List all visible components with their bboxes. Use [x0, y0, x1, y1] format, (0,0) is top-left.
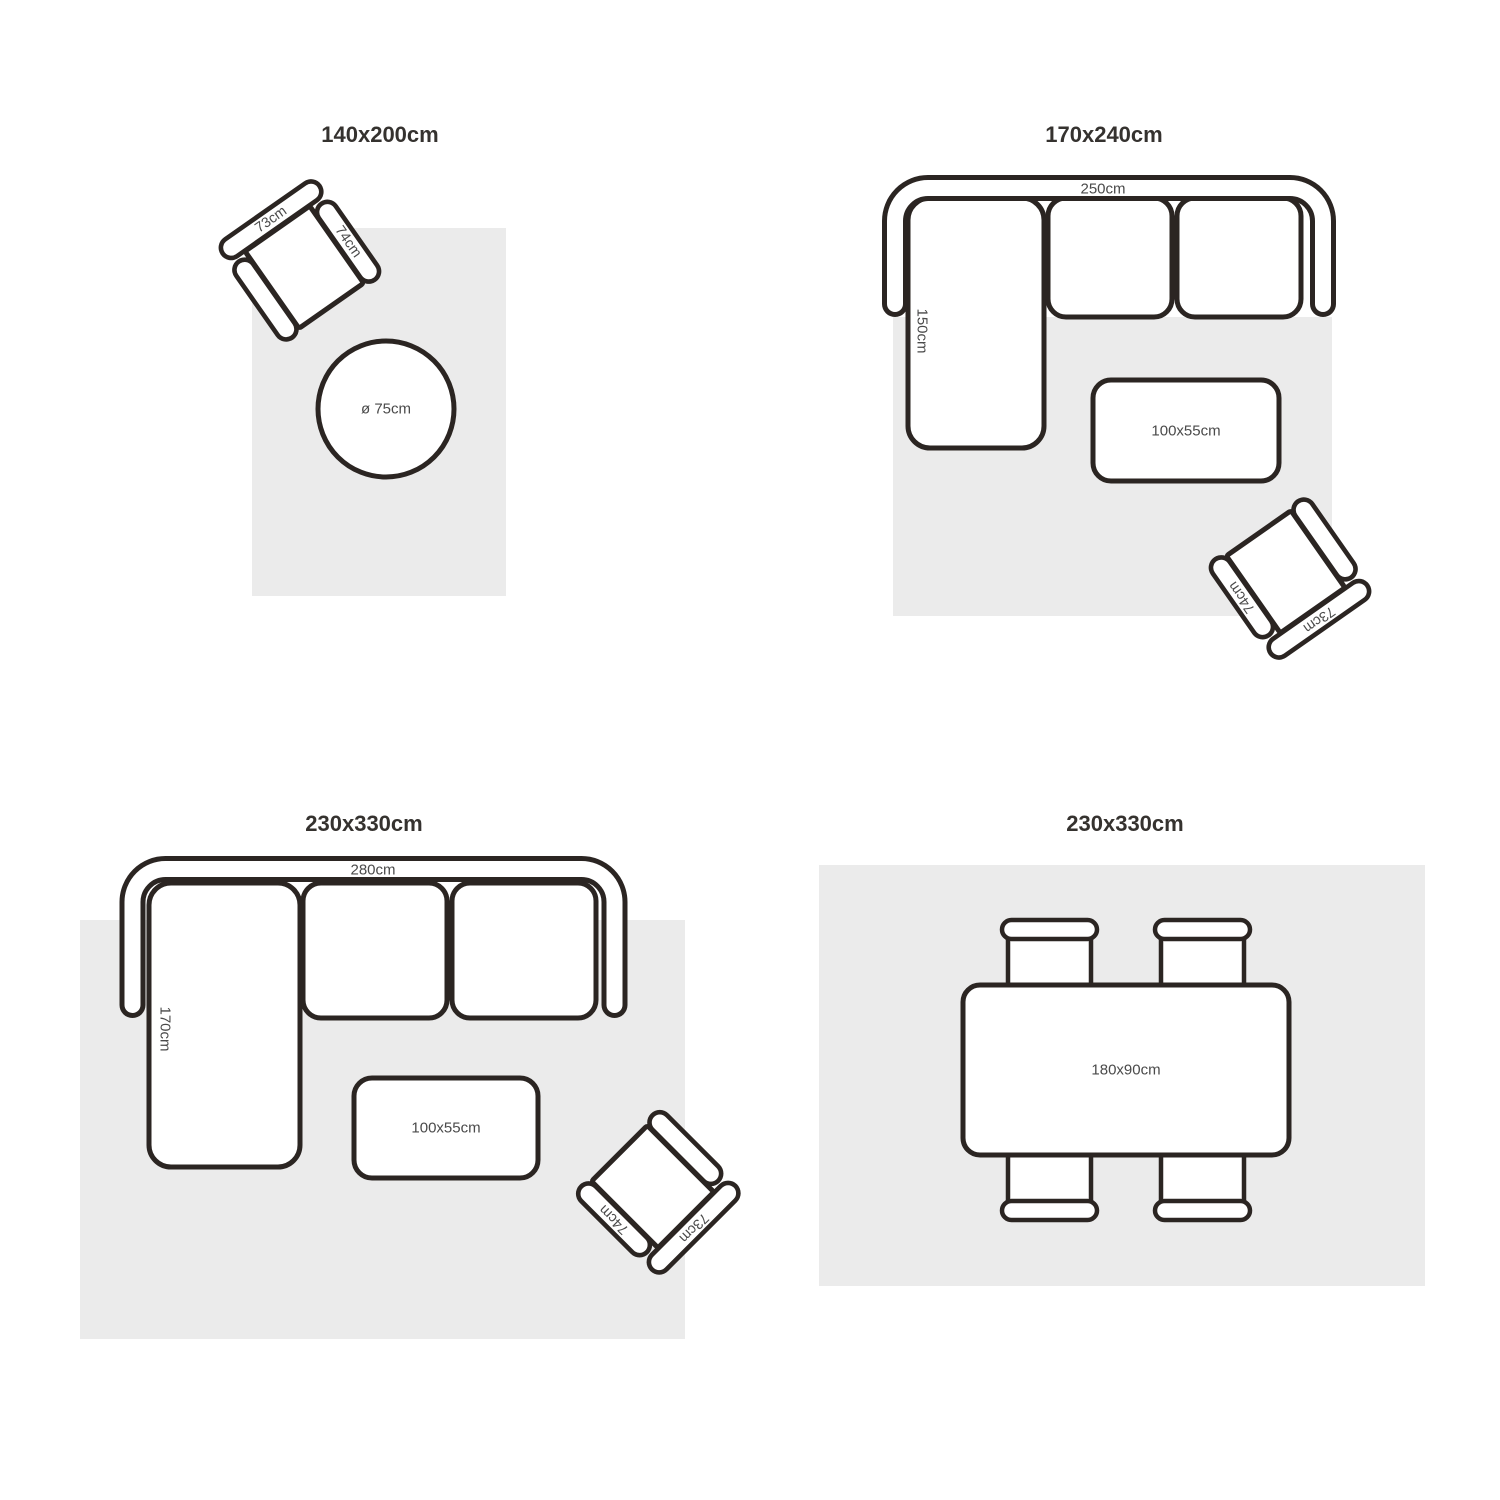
sofa-depth-dimension: 150cm [914, 308, 931, 353]
dining-chair-backrest [1002, 920, 1097, 939]
sofa-width-dimension: 280cm [350, 862, 395, 879]
sofa-cushion [1048, 198, 1172, 317]
panel-title: 170x240cm [1045, 122, 1162, 147]
sofa-depth-dimension: 170cm [157, 1006, 174, 1051]
dining-chair-seat [1008, 938, 1091, 986]
panel-140x200: 140x200cm 73cm 74cm ø 75cm [225, 122, 506, 596]
dining-chair-backrest [1002, 1201, 1097, 1220]
panel-title: 230x330cm [1066, 811, 1183, 836]
dining-chair [1155, 920, 1250, 986]
dining-chair-seat [1161, 1154, 1244, 1202]
dining-chair-seat [1008, 1154, 1091, 1202]
sofa-cushion [303, 883, 447, 1018]
dining-chair-seat [1161, 938, 1244, 986]
dining-chair [1002, 1154, 1097, 1220]
panel-230x330-dining: 230x330cm 180x90cm [819, 811, 1425, 1286]
dining-chair [1002, 920, 1097, 986]
panel-230x330-living: 230x330cm 280cm 170cm 100x55cm 73cm [80, 811, 735, 1339]
sofa-width-dimension: 250cm [1080, 181, 1125, 198]
panel-title: 230x330cm [305, 811, 422, 836]
dining-chair-backrest [1155, 1201, 1250, 1220]
dining-table-dimension: 180x90cm [1091, 1062, 1160, 1079]
rug-size-diagram: 140x200cm 73cm 74cm ø 75cm 170x240cm [0, 0, 1500, 1500]
panel-title: 140x200cm [321, 122, 438, 147]
dining-chair [1155, 1154, 1250, 1220]
sofa-cushion [452, 883, 596, 1018]
coffee-table: 100x55cm [1093, 380, 1279, 481]
rug-size-guide: 140x200cm 73cm 74cm ø 75cm 170x240cm [0, 0, 1500, 1500]
panel-170x240: 170x240cm 250cm 150cm 100x55cm 73cm [893, 122, 1365, 659]
dining-chair-backrest [1155, 920, 1250, 939]
sofa-cushion [1177, 198, 1301, 317]
round-side-table: ø 75cm [318, 341, 454, 477]
coffee-table-dimension: 100x55cm [1151, 423, 1220, 440]
coffee-table-dimension: 100x55cm [411, 1120, 480, 1137]
round-side-table-dimension: ø 75cm [361, 401, 411, 418]
dining-table: 180x90cm [963, 985, 1289, 1155]
coffee-table: 100x55cm [354, 1078, 538, 1178]
